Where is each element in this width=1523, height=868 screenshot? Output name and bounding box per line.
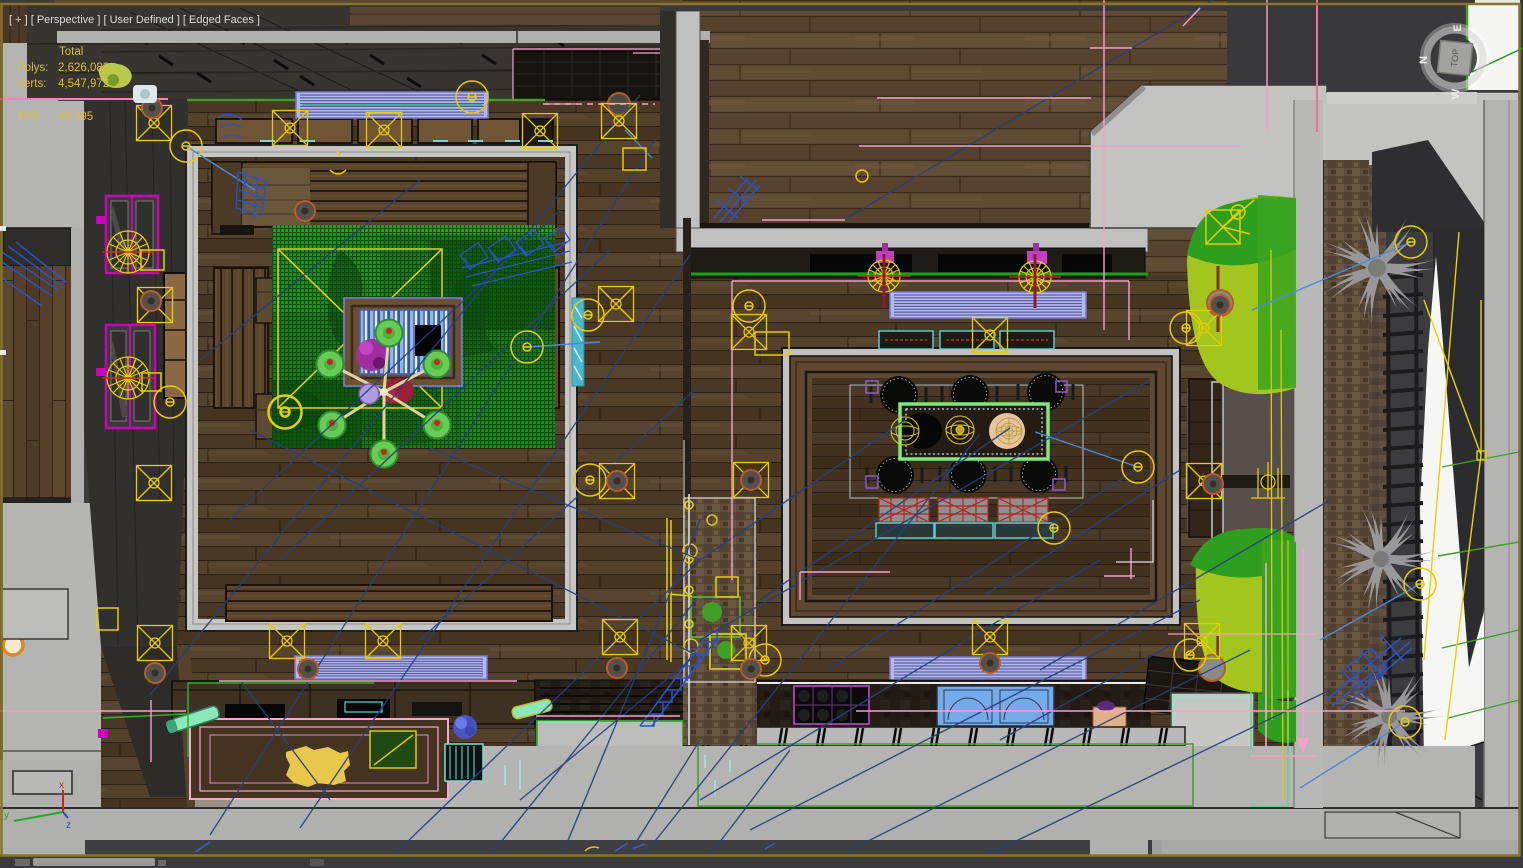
svg-text:Verts:: Verts: bbox=[17, 78, 46, 90]
svg-text:x: x bbox=[59, 780, 64, 791]
svg-text:E: E bbox=[1452, 24, 1464, 31]
svg-text:Total: Total bbox=[59, 46, 83, 58]
svg-text:W: W bbox=[1450, 88, 1462, 99]
svg-text:TOP: TOP bbox=[1449, 48, 1461, 67]
svg-text:Polys:: Polys: bbox=[17, 62, 48, 74]
svg-text:4,547,972: 4,547,972 bbox=[58, 78, 109, 90]
svg-text:40.395: 40.395 bbox=[58, 111, 93, 123]
svg-text:FPS:: FPS: bbox=[17, 111, 43, 123]
svg-text:N: N bbox=[1418, 56, 1430, 64]
svg-text:z: z bbox=[66, 820, 71, 831]
svg-text:2,626,083: 2,626,083 bbox=[58, 62, 109, 74]
svg-text:[ + ] [ Perspective ] [ User D: [ + ] [ Perspective ] [ User Defined ] [… bbox=[9, 14, 260, 26]
svg-text:y: y bbox=[4, 810, 9, 821]
